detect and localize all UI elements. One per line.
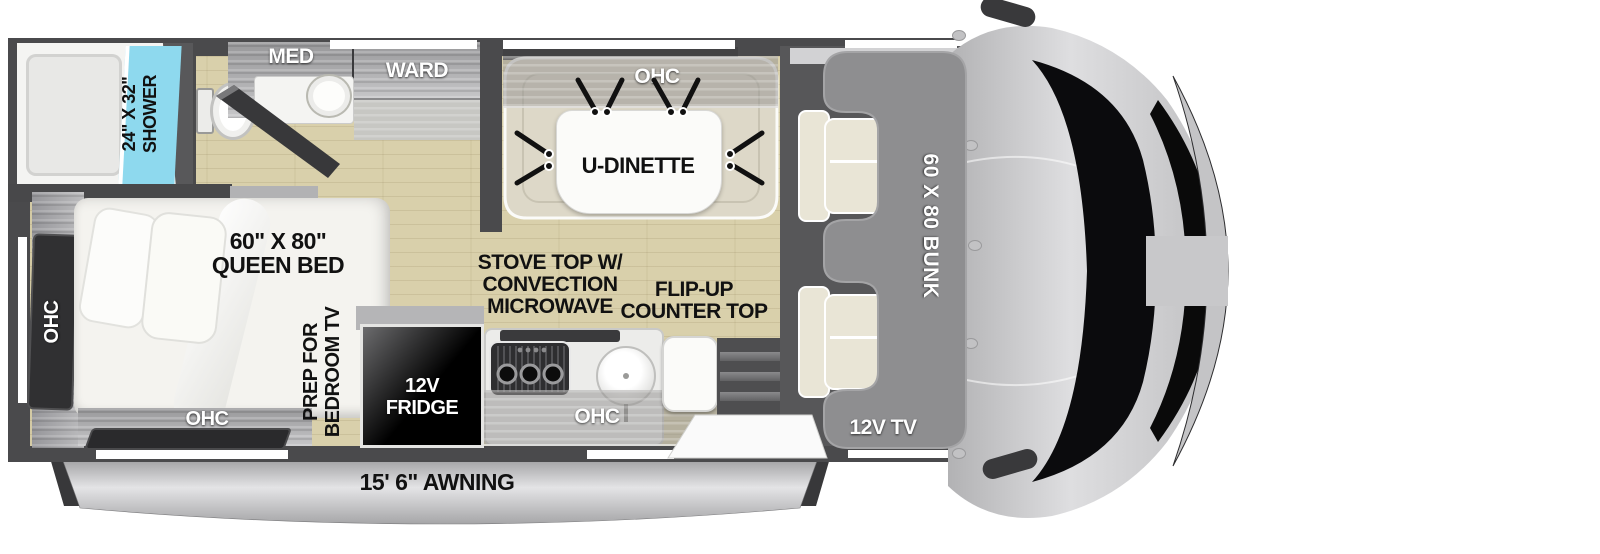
- bed-storage-mat: [84, 428, 292, 450]
- awning-label: 15' 6" AWNING: [330, 470, 544, 494]
- tv-prep-line1: PREP FOR: [300, 307, 322, 438]
- wardrobe-shelf: [354, 98, 480, 140]
- stove-label-line1: STOVE TOP W/: [478, 252, 623, 274]
- tv-prep-line2: BEDROOM TV: [322, 307, 344, 438]
- dinette-divider-wall: [480, 38, 502, 232]
- entry-landing: [666, 413, 831, 460]
- stove-label-line3: MICROWAVE: [478, 296, 623, 318]
- bathroom-door: [210, 80, 350, 190]
- fridge-label-line2: FRIDGE: [386, 397, 459, 419]
- shower-pan: [26, 54, 122, 176]
- window: [503, 40, 735, 49]
- medicine-cabinet-label: MED: [246, 46, 336, 68]
- entry-step: [720, 372, 780, 381]
- flip-counter-label: FLIP-UP COUNTER TOP: [608, 279, 780, 323]
- window: [96, 450, 288, 459]
- stove-label-line2: CONVECTION: [478, 274, 623, 296]
- bedroom-foot-ohc-label: OHC: [167, 409, 247, 431]
- bedroom-side-ohc-label: OHC: [42, 282, 64, 362]
- queen-bed-label: 60" X 80" QUEEN BED: [190, 228, 366, 278]
- flip-counter-line1: FLIP-UP: [621, 279, 768, 301]
- fridge-label: 12V FRIDGE: [362, 373, 482, 421]
- window: [330, 40, 477, 49]
- entry-step: [720, 352, 780, 361]
- window: [587, 450, 674, 459]
- flip-up-counter: [662, 336, 718, 412]
- window: [18, 237, 27, 403]
- shower-name-label: SHOWER: [140, 75, 161, 153]
- tv-prep-label: PREP FOR BEDROOM TV: [299, 297, 345, 447]
- entry-step: [720, 392, 780, 401]
- awning-shape: [40, 454, 840, 540]
- shower-label: 24" X 32" SHOWER: [118, 44, 162, 184]
- wardrobe-label: WARD: [370, 60, 464, 82]
- fridge-label-line1: 12V: [386, 375, 459, 397]
- shower-size-label: 24" X 32": [119, 75, 140, 153]
- flip-counter-line2: COUNTER TOP: [621, 301, 768, 323]
- bed-size-label: 60" X 80": [212, 229, 344, 253]
- kitchen-ohc-label: OHC: [557, 406, 637, 428]
- bunk-label: 60 X 80 BUNK: [919, 141, 941, 311]
- clearance-light: [952, 30, 966, 41]
- cabover-bunk: [810, 44, 980, 456]
- sink-drain: [623, 373, 629, 379]
- bed-name-label: QUEEN BED: [212, 253, 344, 277]
- rv-floorplan: 15' 6" AWNING 24" X 32" SHOWER MED WARD …: [0, 0, 1600, 554]
- seatbelt-marks: [505, 58, 785, 198]
- cab-tv-label: 12V TV: [837, 417, 929, 439]
